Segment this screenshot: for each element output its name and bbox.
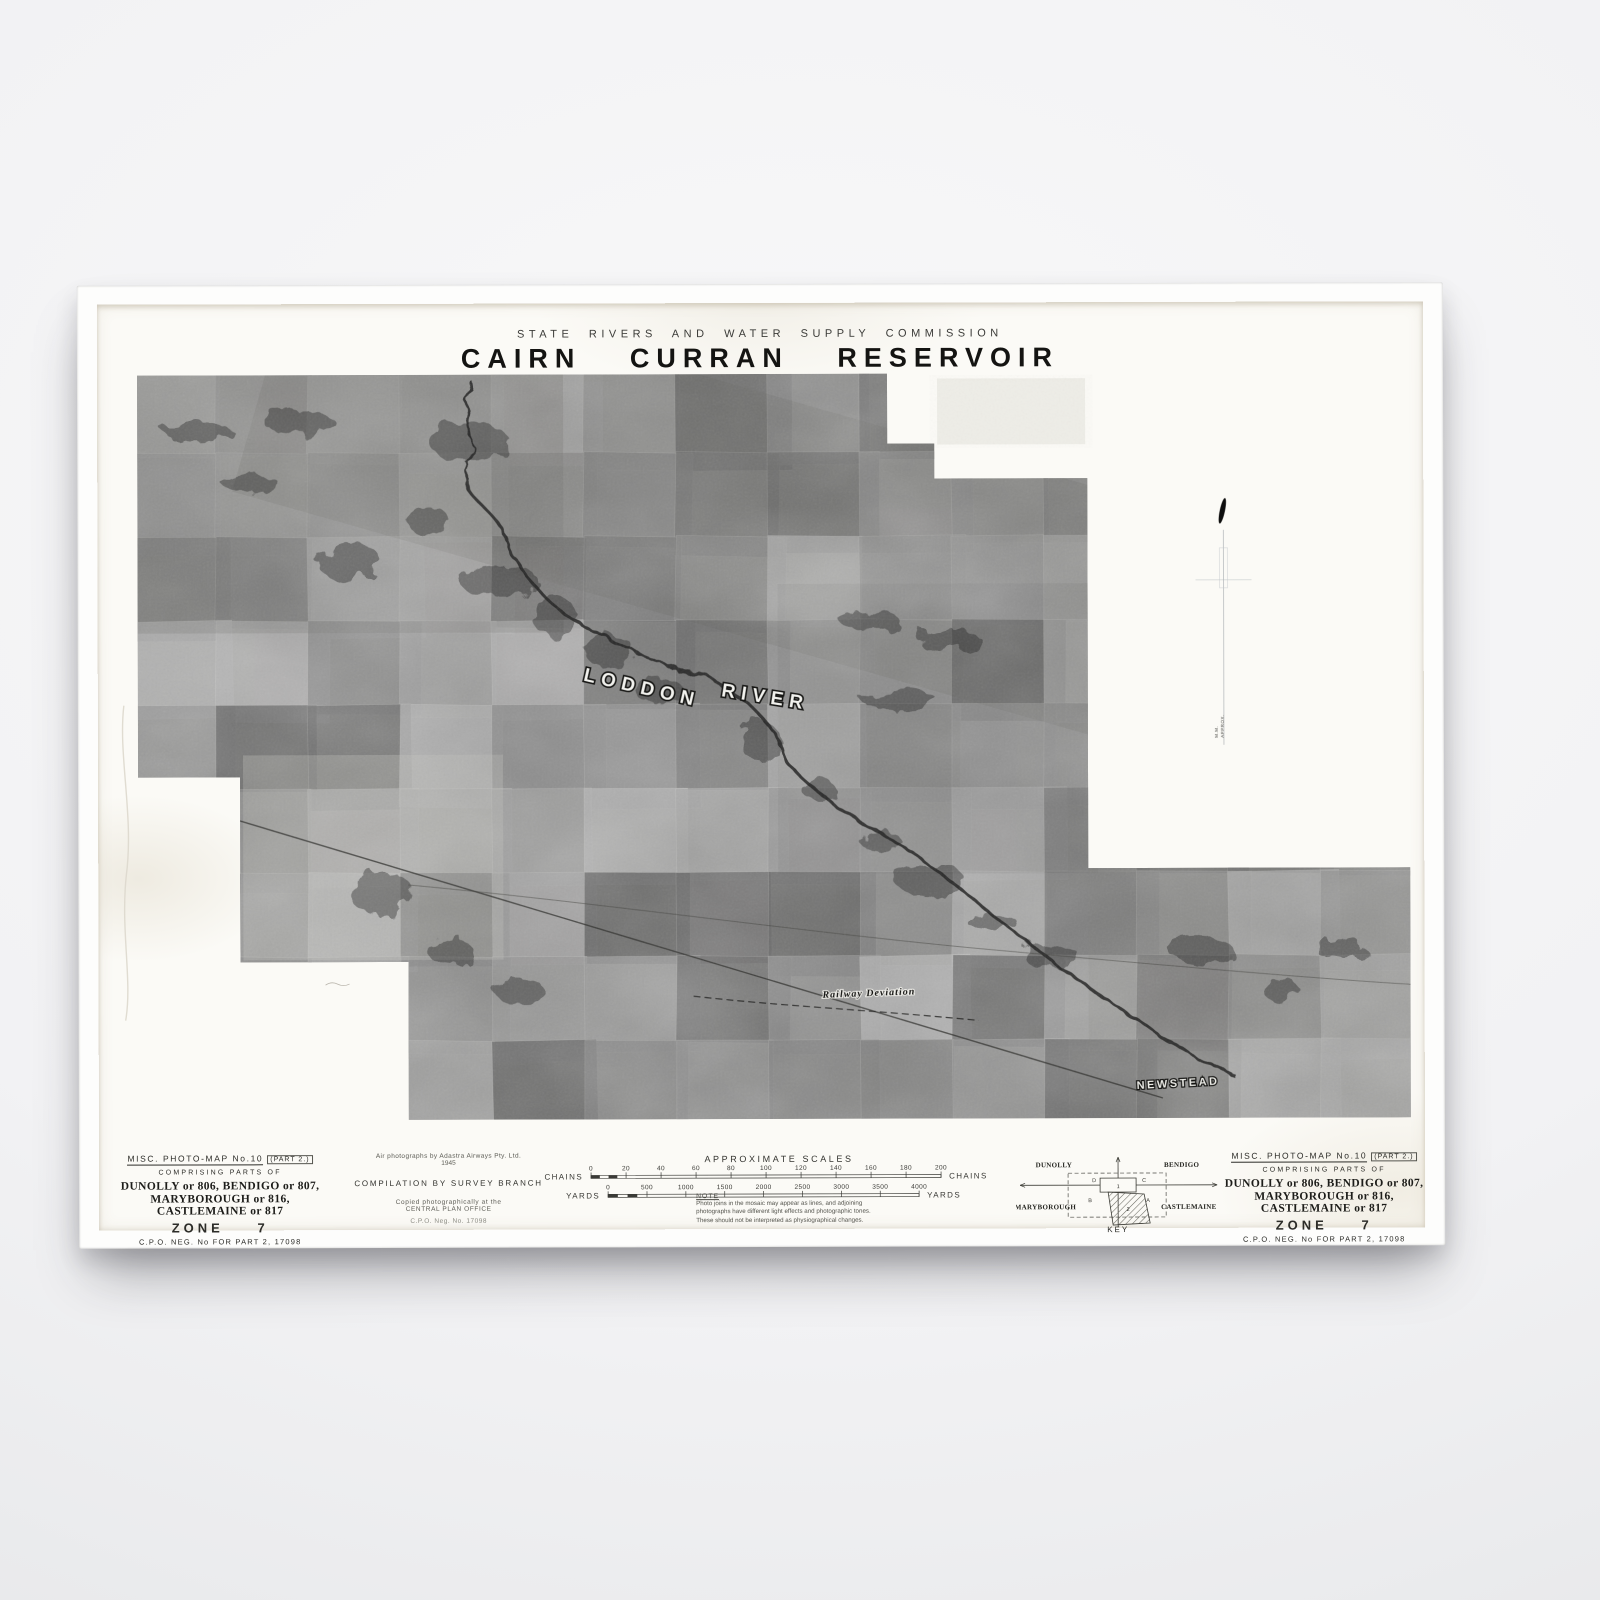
key-title: KEY (1107, 1225, 1129, 1233)
mosaic-tile (1319, 450, 1418, 544)
pencil-annotation (326, 983, 350, 986)
mosaic-tile (1412, 786, 1446, 883)
mosaic-tile (1135, 367, 1246, 471)
mosaic-tile (124, 1040, 230, 1142)
margin-mark-text-2: APPROX. (1220, 714, 1225, 738)
chains-scale-tick-label: 0 (589, 1165, 593, 1172)
picture-frame: STATE RIVERS AND WATER SUPPLY COMMISSION… (77, 282, 1446, 1249)
mosaic-tile (124, 873, 241, 964)
mosaic-tile (1227, 618, 1324, 717)
mosaic-grain (133, 370, 1421, 1123)
sheets-line2: MARYBOROUGH or 816, CASTLEMAINE or 817 (1218, 1190, 1430, 1215)
yards-scale-tick-label: 0 (606, 1184, 610, 1191)
chains-scale-tick-label: 140 (830, 1165, 842, 1172)
mosaic-tile (1228, 786, 1335, 873)
chains-scale-tick-label: 180 (900, 1165, 912, 1172)
note-line: These should not be interpreted as physi… (696, 1216, 911, 1225)
yards-scale-unit-right: YARDS (927, 1190, 961, 1199)
mosaic-tile (1411, 701, 1445, 801)
photo-background: STATE RIVERS AND WATER SUPPLY COMMISSION… (0, 0, 1600, 1600)
chains-scale-tick-label: 100 (760, 1165, 772, 1172)
mosaic-tile (1412, 870, 1445, 957)
sheet-info-left: MISC. PHOTO-MAP No.10(PART 2.) COMPRISIN… (114, 1148, 326, 1247)
chains-scale-tick-label: 80 (727, 1165, 735, 1172)
key-quadrant-c: C (1142, 1178, 1146, 1184)
yards-scale-tick-label: 2000 (756, 1184, 772, 1191)
mosaic-tile (1226, 365, 1327, 463)
margin-mark-text-1: M.M. (1214, 726, 1219, 738)
mosaic-tile (1319, 701, 1419, 808)
series-title: MISC. PHOTO-MAP No.10 (1231, 1150, 1367, 1162)
yards-scale-tick-label: 2500 (794, 1184, 810, 1191)
mosaic-tile (1136, 787, 1249, 874)
mosaic-tile (1411, 450, 1445, 542)
key-quadrant-d: D (1092, 1178, 1096, 1184)
mosaic-tile (1227, 451, 1332, 549)
neg-line: C.P.O. NEG. No FOR PART 2, 17098 (114, 1237, 326, 1247)
mosaic-tile (1135, 534, 1242, 628)
chains-scale-unit-left: CHAINS (544, 1172, 583, 1181)
neg-line: C.P.O. NEG. No FOR PART 2, 17098 (1218, 1234, 1430, 1244)
comprising-line: COMPRISING PARTS OF (114, 1169, 326, 1177)
key-sheet2-number: 2 (1127, 1207, 1130, 1213)
mosaic-area (122, 282, 1445, 1148)
mosaic-tile (1135, 450, 1242, 543)
zone-line: ZONE 7 (1218, 1217, 1430, 1233)
photo-mosaic: LODDON RIVER Railway Deviation NEWSTEAD … (77, 282, 1446, 1249)
series-title: MISC. PHOTO-MAP No.10 (127, 1153, 263, 1165)
mosaic-tile (1135, 618, 1233, 709)
key-city-sw: MARYBOROUGH (1016, 1203, 1076, 1211)
chains-scale-tick-label: 200 (935, 1165, 947, 1172)
mosaic-tile (1412, 954, 1445, 1047)
chains-scale-tick-label: 160 (865, 1165, 877, 1172)
mosaic-tile (1410, 365, 1445, 471)
chains-scale: 020406080100120140160180200CHAINSCHAINS (544, 1164, 987, 1181)
chains-scale-tick-label: 60 (692, 1165, 700, 1172)
mosaic-tile (308, 956, 410, 1060)
yards-scale-tick-label: 3000 (833, 1184, 849, 1191)
mosaic-tile (1227, 702, 1336, 797)
mosaic-tile (1412, 1038, 1445, 1131)
chains-scale-unit-right: CHAINS (949, 1171, 988, 1180)
yards-scale-tick-label: 3500 (872, 1184, 888, 1191)
chains-scale-tick-label: 120 (795, 1165, 807, 1172)
mosaic-tile (1319, 366, 1416, 470)
key-sheet1-number: 1 (1117, 1184, 1120, 1190)
mosaic-tile (1319, 618, 1413, 720)
series-part: (PART 2.) (267, 1155, 312, 1164)
mosaic-tile (1227, 534, 1337, 621)
key-city-se: CASTLEMAINE (1161, 1203, 1216, 1211)
mosaic-tile (1320, 786, 1421, 876)
yards-scale-tick-label: 4000 (911, 1184, 927, 1191)
yards-scale-tick-label: 500 (641, 1184, 653, 1191)
yards-scale-tick-label: 1000 (678, 1184, 694, 1191)
yards-scale-tick-label: 1500 (717, 1184, 733, 1191)
sheets-line2: MARYBOROUGH or 816, CASTLEMAINE or 817 (114, 1193, 326, 1218)
key-city-ne: BENDIGO (1164, 1161, 1199, 1169)
paper-crease (122, 706, 128, 1021)
mosaic-tile (1411, 534, 1445, 622)
sheet-info-right: MISC. PHOTO-MAP No.10(PART 2.) COMPRISIN… (1218, 1145, 1430, 1244)
mosaic-tile (124, 957, 231, 1057)
mosaic-tile (308, 1040, 409, 1129)
sheets-line1: DUNOLLY or 806, BENDIGO or 807, (1218, 1177, 1430, 1190)
margin-fold-mark: M.M. APPROX. (1195, 497, 1252, 744)
chains-scale-tick-label: 40 (657, 1165, 665, 1172)
key-city-nw: DUNOLLY (1036, 1161, 1072, 1169)
fold-ink-mark (1217, 498, 1227, 525)
key-quadrant-a: A (1146, 1198, 1150, 1204)
faint-photo-grain (937, 378, 1085, 444)
series-part: (PART 2.) (1371, 1152, 1416, 1161)
comprising-line: COMPRISING PARTS OF (1218, 1166, 1430, 1174)
yards-scale-unit-left: YARDS (566, 1191, 600, 1200)
scales-title: APPROXIMATE SCALES (704, 1154, 853, 1164)
mosaic-tile (216, 1040, 312, 1137)
mosaic-tile (1412, 618, 1446, 722)
note-block: NOTE Photo joins in the mosaic may appea… (696, 1193, 911, 1226)
key-diagram: DUNOLLY BENDIGO MARYBOROUGH CASTLEMAINE … (1016, 1155, 1221, 1234)
zone-line: ZONE 7 (114, 1220, 326, 1236)
sheets-line1: DUNOLLY or 806, BENDIGO or 807, (114, 1180, 326, 1193)
mosaic-tile (216, 957, 312, 1046)
key-quadrant-b: B (1088, 1198, 1092, 1204)
mosaic-tile (1319, 534, 1421, 621)
mosaic-tile (124, 789, 233, 875)
chains-scale-tick-label: 20 (622, 1165, 630, 1172)
